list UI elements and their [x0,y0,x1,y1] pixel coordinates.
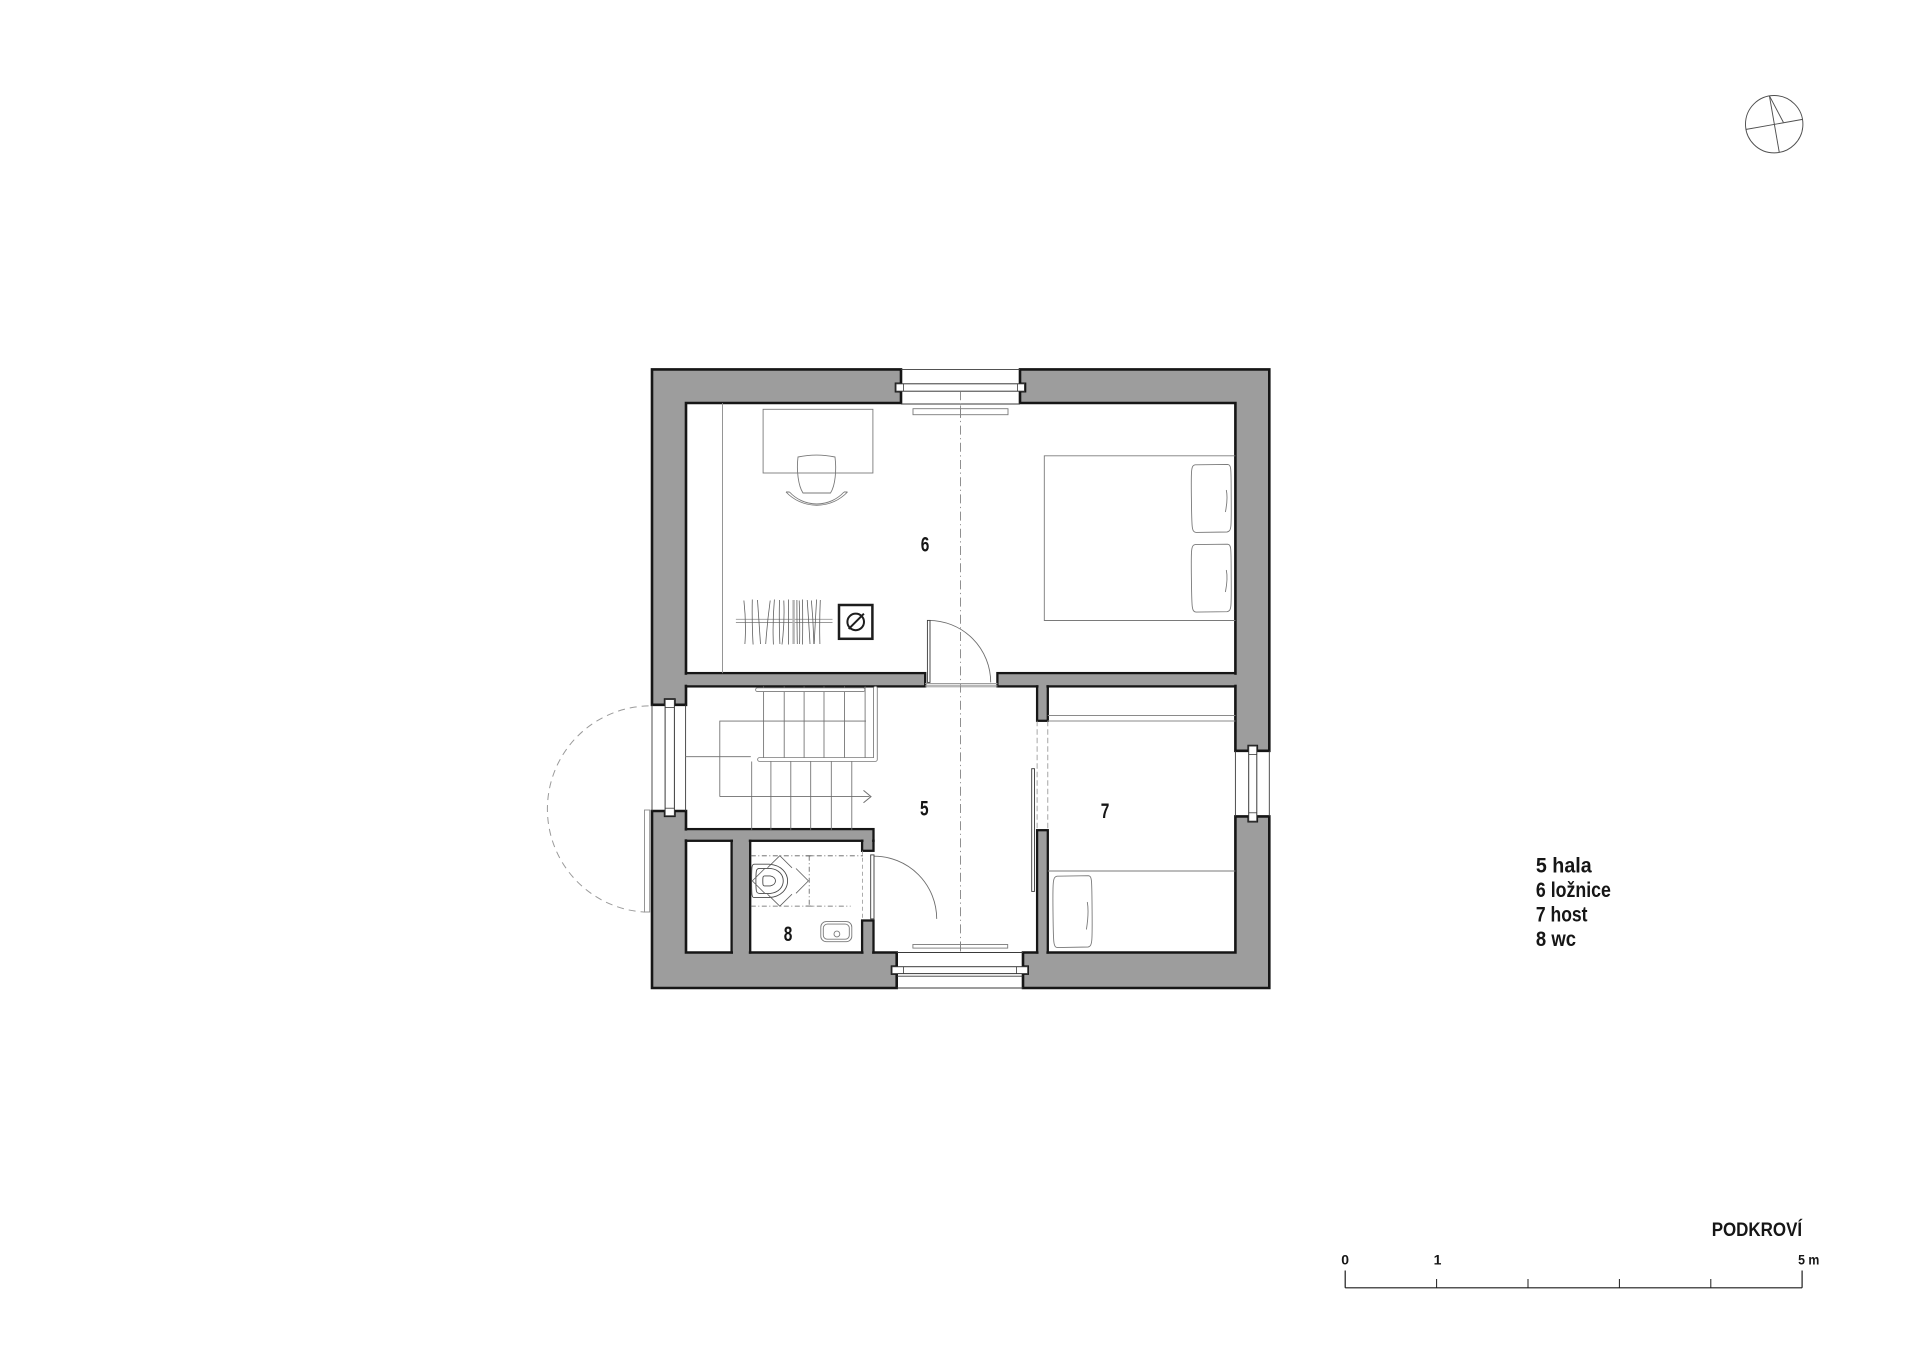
svg-text:7: 7 [1101,800,1110,823]
svg-text:5 m: 5 m [1798,1252,1819,1268]
svg-text:5: 5 [920,798,929,821]
svg-text:7 host: 7 host [1536,903,1588,926]
svg-text:0: 0 [1341,1252,1349,1268]
svg-text:5 hala: 5 hala [1536,854,1592,877]
svg-text:8: 8 [784,923,793,946]
svg-text:1: 1 [1434,1252,1442,1268]
svg-text:6: 6 [921,534,930,557]
svg-text:6 ložnice: 6 ložnice [1536,879,1611,902]
svg-text:8 wc: 8 wc [1536,928,1576,951]
svg-text:PODKROVÍ: PODKROVÍ [1712,1218,1803,1241]
